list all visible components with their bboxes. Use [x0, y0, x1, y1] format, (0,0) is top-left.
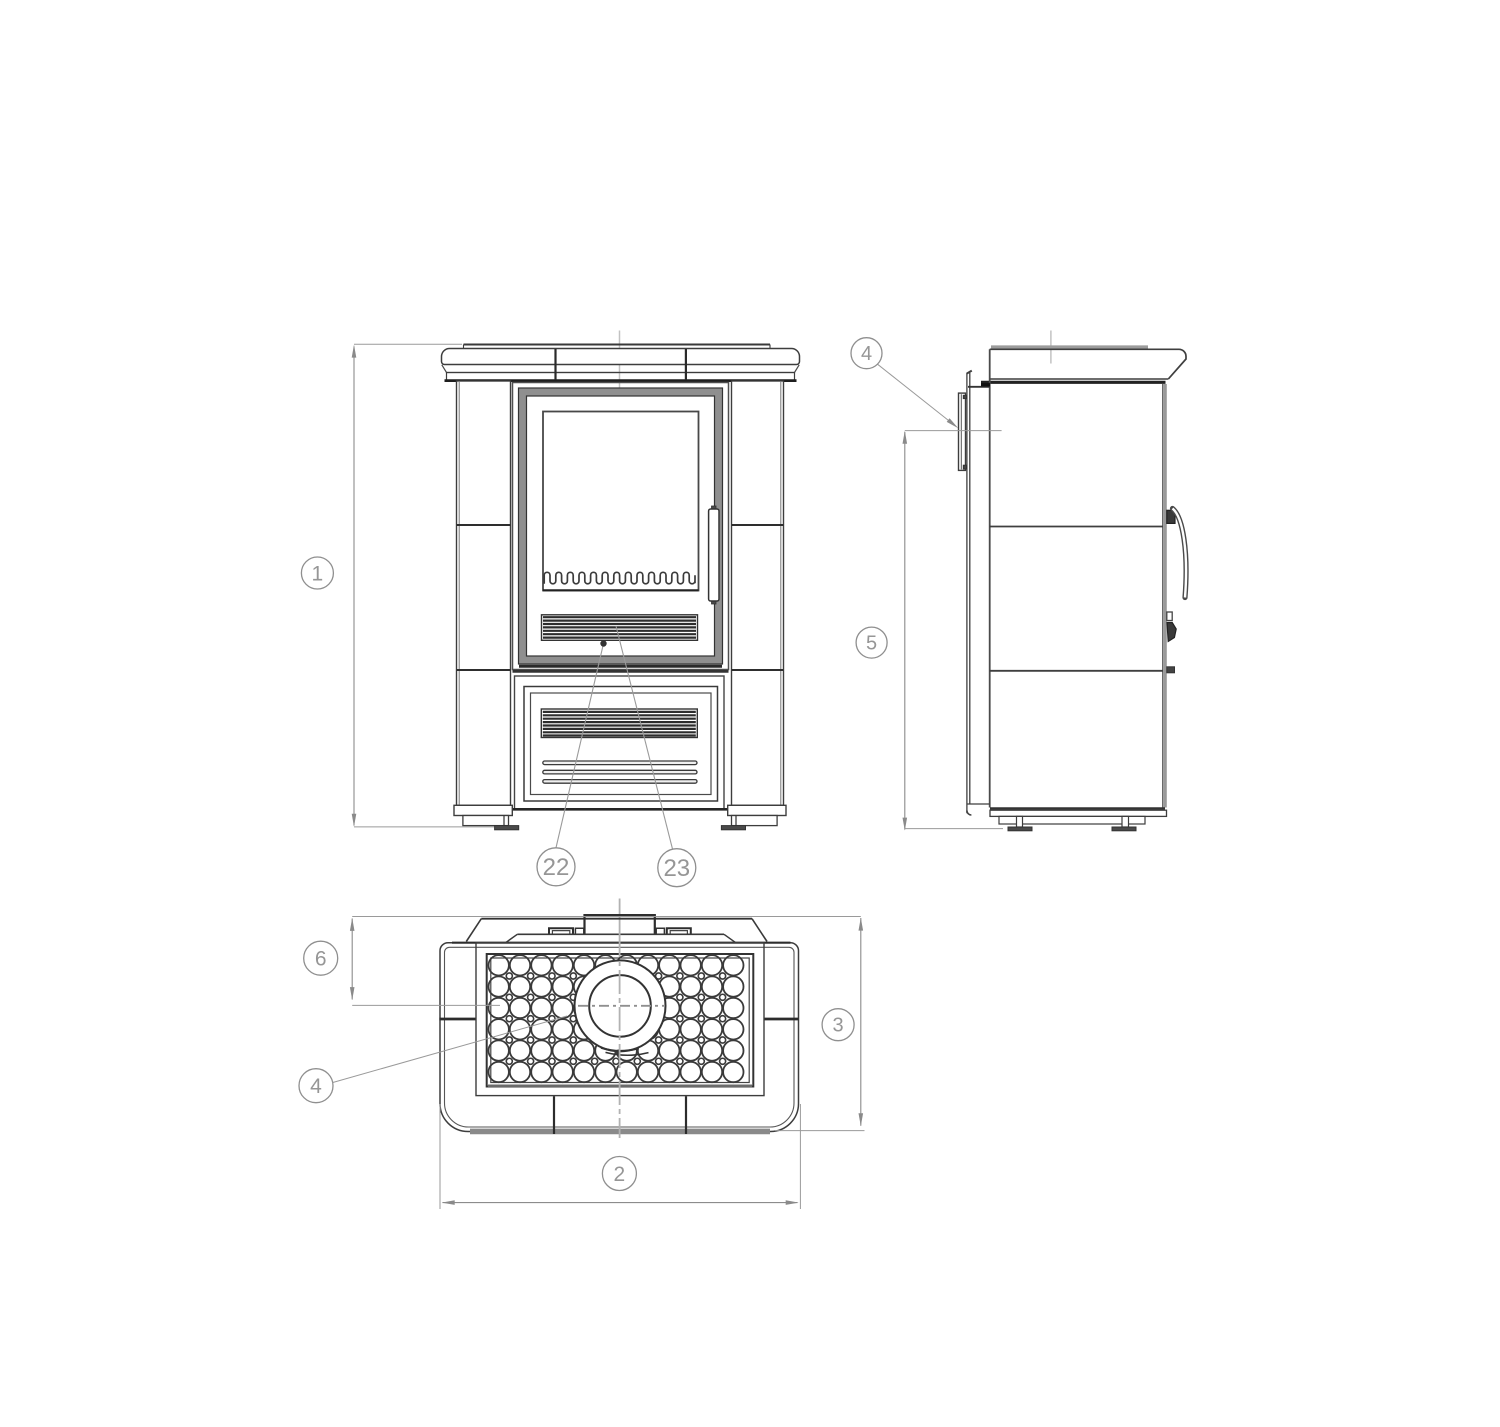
svg-text:23: 23	[663, 855, 690, 882]
svg-text:3: 3	[833, 1015, 844, 1037]
svg-text:4: 4	[310, 1075, 322, 1098]
svg-text:2: 2	[614, 1163, 626, 1186]
svg-text:5: 5	[866, 633, 877, 655]
svg-text:4: 4	[861, 343, 872, 365]
svg-text:22: 22	[543, 854, 570, 881]
svg-text:1: 1	[312, 562, 324, 585]
svg-text:6: 6	[315, 948, 327, 971]
